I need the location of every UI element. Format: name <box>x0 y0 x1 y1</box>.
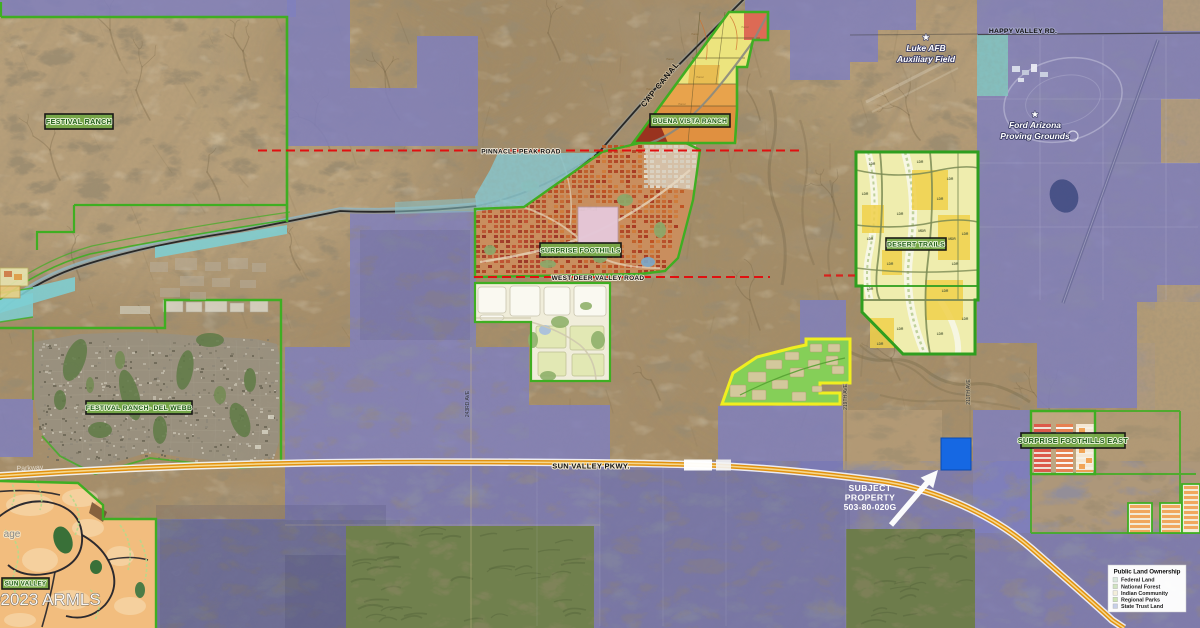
svg-text:LDR: LDR <box>962 317 969 321</box>
svg-text:LDR: LDR <box>867 287 874 291</box>
svg-text:FESTIVAL RANCH- DEL WEBB: FESTIVAL RANCH- DEL WEBB <box>86 405 192 412</box>
svg-text:219TH AVE: 219TH AVE <box>843 383 849 409</box>
svg-text:Parcel: Parcel <box>678 103 686 106</box>
svg-text:243RD AVE: 243RD AVE <box>465 390 471 417</box>
svg-text:MDR: MDR <box>918 229 926 233</box>
svg-text:National Forest: National Forest <box>1121 584 1160 590</box>
svg-text:Parcel: Parcel <box>696 76 704 79</box>
svg-text:©2023 ARMLS: ©2023 ARMLS <box>0 590 101 609</box>
svg-text:SUN VALLEY PKWY.: SUN VALLEY PKWY. <box>552 462 629 471</box>
svg-text:SURPRISE FOOTHILLS EAST: SURPRISE FOOTHILLS EAST <box>1018 436 1129 445</box>
svg-text:SURPRISE FOOTHILLS: SURPRISE FOOTHILLS <box>540 247 621 254</box>
svg-text:Public Land Ownership: Public Land Ownership <box>1114 569 1181 576</box>
svg-text:LDR: LDR <box>947 177 954 181</box>
svg-text:LDR: LDR <box>887 262 894 266</box>
svg-text:Parcel: Parcel <box>691 33 699 36</box>
svg-text:LDR: LDR <box>867 237 874 241</box>
svg-text:HAPPY VALLEY RD.: HAPPY VALLEY RD. <box>989 28 1057 35</box>
svg-text:Ford Arizona: Ford Arizona <box>1009 120 1061 130</box>
svg-text:Regional Parks: Regional Parks <box>1121 598 1160 604</box>
svg-text:BUENA VISTA RANCH: BUENA VISTA RANCH <box>653 118 727 125</box>
svg-text:LDR: LDR <box>917 160 924 164</box>
svg-text:LDR: LDR <box>862 192 869 196</box>
svg-text:MDR: MDR <box>948 237 956 241</box>
svg-text:LDR: LDR <box>952 262 959 266</box>
svg-text:SUN VALLEY: SUN VALLEY <box>5 581 47 588</box>
svg-text:Parcel: Parcel <box>741 26 749 29</box>
svg-text:Proving Grounds: Proving Grounds <box>1000 131 1070 141</box>
svg-text:LDR: LDR <box>897 327 904 331</box>
svg-text:★: ★ <box>922 33 930 42</box>
svg-text:Parkway: Parkway <box>16 464 44 472</box>
svg-text:DESERT TRAILS: DESERT TRAILS <box>887 241 945 248</box>
svg-text:State Trust Land: State Trust Land <box>1121 604 1163 610</box>
svg-text:LDR: LDR <box>937 332 944 336</box>
svg-text:★: ★ <box>1031 110 1039 119</box>
svg-text:age: age <box>4 529 21 540</box>
svg-text:LDR: LDR <box>942 289 949 293</box>
svg-text:503-80-020G: 503-80-020G <box>844 502 897 512</box>
svg-text:LDR: LDR <box>937 197 944 201</box>
svg-text:PINNACLE PEAK ROAD: PINNACLE PEAK ROAD <box>481 149 560 156</box>
svg-text:Luke AFB: Luke AFB <box>906 43 945 53</box>
svg-text:LDR: LDR <box>877 342 884 346</box>
svg-text:LDR: LDR <box>962 232 969 236</box>
svg-text:Auxiliary Field: Auxiliary Field <box>896 54 956 64</box>
svg-text:Indian Community: Indian Community <box>1121 591 1168 597</box>
svg-text:SUBJECT: SUBJECT <box>849 483 892 493</box>
svg-text:LDR: LDR <box>897 212 904 216</box>
svg-text:WEST DEER VALLEY ROAD: WEST DEER VALLEY ROAD <box>552 275 645 282</box>
svg-text:211TH AVE: 211TH AVE <box>966 379 972 405</box>
svg-text:FESTIVAL RANCH: FESTIVAL RANCH <box>46 117 112 126</box>
svg-text:PROPERTY: PROPERTY <box>845 493 895 503</box>
svg-text:Federal Land: Federal Land <box>1121 578 1155 584</box>
svg-text:LDR: LDR <box>869 162 876 166</box>
